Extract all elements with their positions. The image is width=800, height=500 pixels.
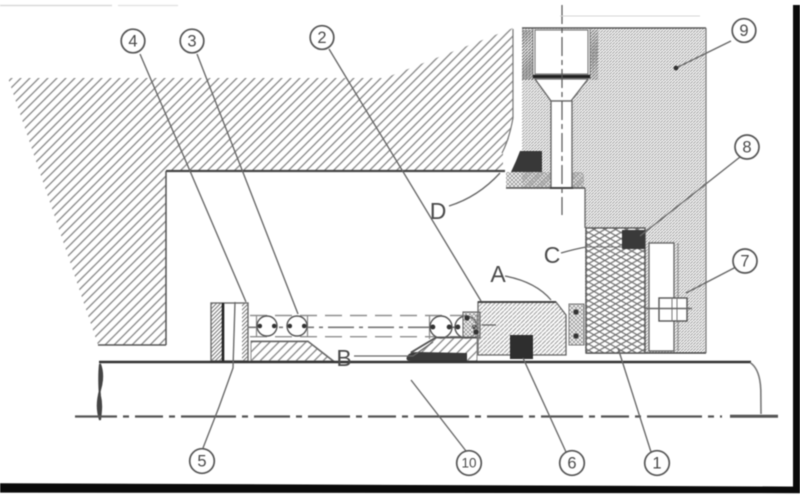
svg-text:7: 7: [740, 253, 749, 271]
svg-text:6: 6: [567, 455, 576, 473]
svg-text:10: 10: [461, 456, 476, 471]
svg-text:8: 8: [742, 139, 751, 157]
svg-text:5: 5: [197, 453, 206, 471]
svg-text:A: A: [490, 261, 506, 287]
svg-text:4: 4: [128, 33, 137, 51]
svg-text:9: 9: [739, 22, 748, 40]
svg-text:D: D: [430, 198, 447, 224]
svg-text:B: B: [336, 345, 351, 371]
svg-text:2: 2: [317, 29, 326, 47]
svg-text:C: C: [544, 242, 561, 268]
svg-text:3: 3: [187, 33, 196, 51]
svg-text:1: 1: [652, 455, 661, 473]
